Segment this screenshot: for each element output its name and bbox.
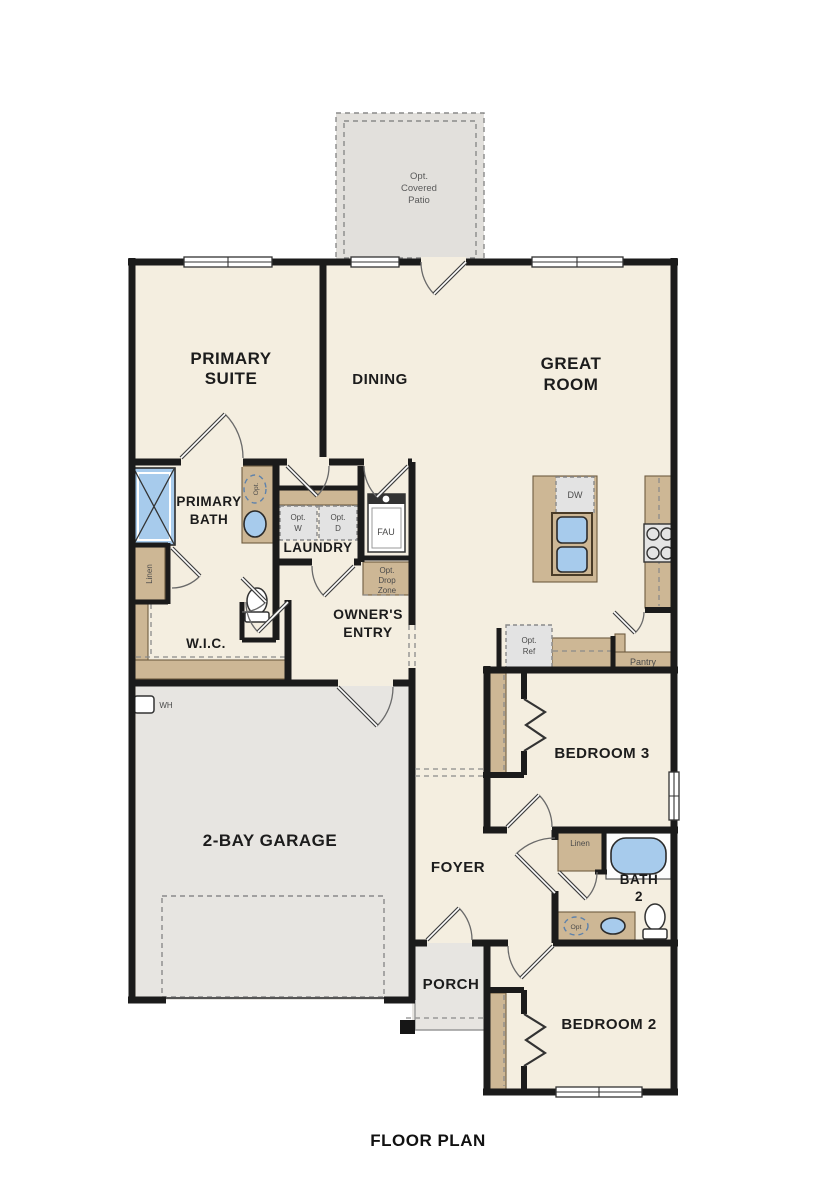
drop-zone-label-line1: Opt. — [379, 566, 394, 575]
fau-unit — [368, 494, 405, 552]
wic-label: W.I.C. — [186, 636, 226, 651]
bath2-label-line1: BATH — [620, 872, 659, 887]
opt-washer-box — [280, 506, 317, 540]
water-heater — [134, 696, 154, 713]
bedroom3-label: BEDROOM 3 — [554, 745, 649, 762]
primary-linen-label: Linen — [145, 564, 154, 584]
primary-shower — [133, 468, 175, 545]
great-room-label-line2: ROOM — [544, 375, 599, 394]
drop-zone-label-line3: Zone — [378, 586, 397, 595]
primary-sink — [244, 511, 266, 537]
dining-label: DINING — [352, 371, 408, 388]
floor-plan-drawing: Opt. Covered Patio PRIMARY SUITE DINING … — [0, 0, 833, 1202]
wh-label: WH — [159, 701, 173, 710]
bath2-sink — [601, 918, 625, 934]
bath2-toilet — [643, 904, 667, 939]
opt-washer-label-line2: W — [294, 524, 302, 533]
primary-bath-label-line2: BATH — [190, 512, 229, 527]
opt-ref-label-line1: Opt. — [521, 636, 536, 645]
primary-suite-label-line2: SUITE — [205, 369, 258, 388]
patio-label-line1: Opt. — [410, 171, 428, 182]
garage-label: 2-BAY GARAGE — [203, 831, 337, 850]
patio-label-line3: Patio — [408, 195, 430, 206]
window-bedroom3 — [669, 772, 679, 820]
opt-ref-label-line2: Ref — [523, 647, 536, 656]
cooktop — [644, 524, 675, 562]
fau-door-opening — [364, 457, 408, 467]
owners-entry-label-line1: OWNER'S — [333, 606, 403, 622]
bath2-label-line2: 2 — [635, 889, 643, 904]
primary-bath-label-line1: PRIMARY — [176, 494, 241, 509]
opt-washer-label-line1: Opt. — [290, 513, 305, 522]
laundry-shelf — [277, 490, 359, 505]
wic-shelf-bottom — [134, 660, 286, 679]
bedroom2-label: BEDROOM 2 — [561, 1016, 656, 1033]
patio-door-opening — [421, 257, 466, 267]
fau-label: FAU — [377, 527, 395, 537]
drop-zone-label-line2: Drop — [378, 576, 396, 585]
opt-dryer-label-line2: D — [335, 524, 341, 533]
window-bedroom2 — [556, 1087, 642, 1097]
laundry-label: LAUNDRY — [284, 540, 353, 555]
window-great-room — [532, 257, 623, 267]
plan-title: FLOOR PLAN — [370, 1131, 486, 1150]
window-dining — [351, 257, 399, 267]
opt-dryer-box — [319, 506, 357, 540]
primary-suite-label-line1: PRIMARY — [190, 349, 271, 368]
bath2-opt-sink-label: Opt — [571, 924, 582, 931]
porch-post — [400, 1020, 415, 1034]
owners-entry-label-line2: ENTRY — [343, 624, 393, 640]
floor-plan-page: Opt. Covered Patio PRIMARY SUITE DINING … — [0, 0, 833, 1202]
primary-door-opening — [181, 457, 243, 467]
window-primary-suite — [184, 257, 272, 267]
porch-label: PORCH — [423, 976, 480, 993]
patio-label-line2: Covered — [401, 183, 437, 194]
bath2-linen-label: Linen — [570, 839, 590, 848]
opt-dryer-label-line1: Opt. — [330, 513, 345, 522]
dining-door-opening — [287, 457, 329, 467]
kitchen-sink — [552, 513, 592, 575]
kitchen-counter-bottom — [552, 638, 614, 668]
pantry-label: Pantry — [630, 657, 657, 667]
great-room-label-line1: GREAT — [541, 354, 602, 373]
primary-opt-sink-label: Opt. — [253, 482, 260, 495]
foyer-label: FOYER — [431, 859, 485, 876]
dw-label: DW — [568, 490, 583, 500]
